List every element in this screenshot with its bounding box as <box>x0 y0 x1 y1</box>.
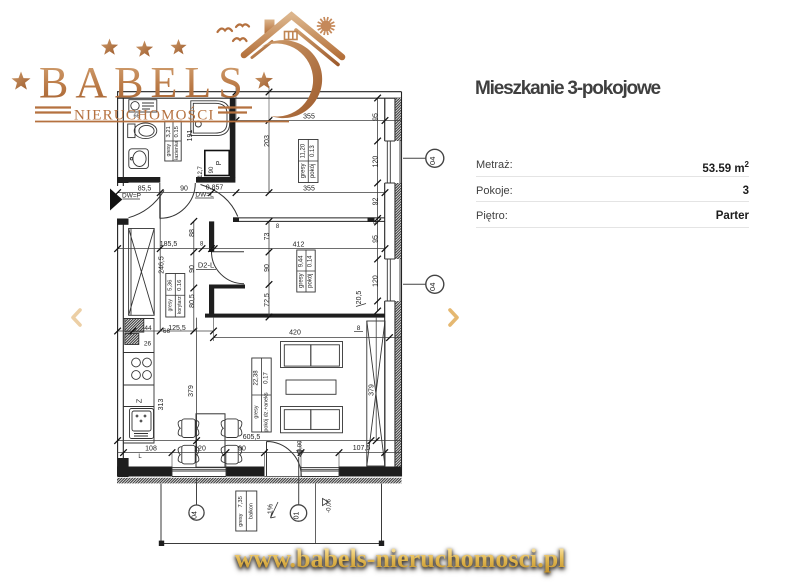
svg-text:BABELS: BABELS <box>39 58 250 107</box>
